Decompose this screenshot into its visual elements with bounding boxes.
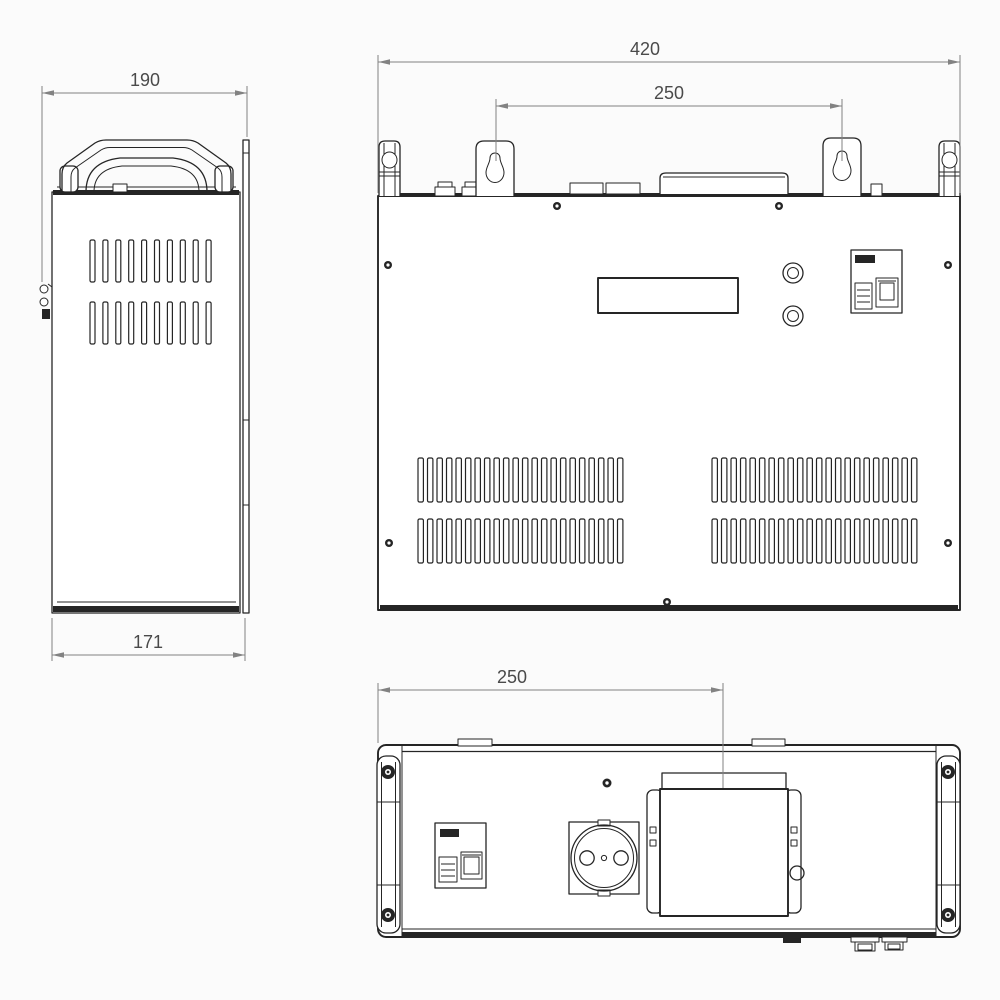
vent-slot <box>494 519 499 563</box>
vent-slot <box>167 302 172 344</box>
vent-slot <box>845 458 850 502</box>
vent-slot <box>561 519 566 563</box>
rail-screw <box>381 908 395 922</box>
vent-slot <box>750 519 755 563</box>
vent-slot <box>485 458 490 502</box>
rail-screw <box>941 765 955 779</box>
screw <box>944 261 952 269</box>
vent-slot <box>836 519 841 563</box>
screw <box>775 202 783 210</box>
vent-slot <box>580 519 585 563</box>
vent-slot <box>798 458 803 502</box>
vent-slot <box>769 519 774 563</box>
vent-slot <box>826 519 831 563</box>
vent-slot <box>731 519 736 563</box>
vent-slot <box>826 458 831 502</box>
vent-slot <box>570 519 575 563</box>
vent-slot <box>912 458 917 502</box>
vent-slot <box>475 458 480 502</box>
vent-slot <box>513 519 518 563</box>
side-handle <box>60 140 233 192</box>
circuit-breaker-front <box>851 250 902 313</box>
vent-slot <box>206 302 211 344</box>
vent-slot <box>779 458 784 502</box>
circuit-breaker-bottom <box>435 823 486 888</box>
vent-slot <box>618 519 623 563</box>
vent-slot <box>103 302 108 344</box>
terminal-cover <box>647 773 801 916</box>
vent-slot <box>769 458 774 502</box>
vent-slot <box>599 458 604 502</box>
screw <box>663 598 671 606</box>
vent-slot <box>494 458 499 502</box>
vent-slot <box>551 519 556 563</box>
vent-slot <box>193 240 198 282</box>
dimension-side-depth: 171 <box>52 618 245 661</box>
front-bottom-band <box>380 605 958 609</box>
vent-slot <box>456 458 461 502</box>
screw <box>553 202 561 210</box>
vent-slot <box>437 458 442 502</box>
vent-slot <box>779 519 784 563</box>
vent-slot <box>90 240 95 282</box>
vent-slot <box>902 519 907 563</box>
vent-slot <box>485 519 490 563</box>
vent-slot <box>893 519 898 563</box>
top-cover <box>660 173 788 194</box>
vent-slot <box>788 458 793 502</box>
dim-label-250-front: 250 <box>654 83 684 103</box>
vent-slot <box>817 458 822 502</box>
vent-slot <box>523 458 528 502</box>
vent-slot <box>180 240 185 282</box>
vent-slot <box>722 458 727 502</box>
vent-slot <box>589 519 594 563</box>
rail-screw <box>941 908 955 922</box>
vent-slot <box>167 240 172 282</box>
vent-slot <box>561 458 566 502</box>
bottom-view: 250 <box>377 667 960 951</box>
vent-slot <box>712 458 717 502</box>
vent-slot <box>864 458 869 502</box>
flange-screw <box>791 827 797 833</box>
vent-slot <box>722 519 727 563</box>
vent-slot <box>551 458 556 502</box>
vent-slot <box>523 519 528 563</box>
vent-slot <box>883 519 888 563</box>
panel-screw <box>603 779 612 788</box>
vent-slot <box>90 302 95 344</box>
vent-slot <box>807 519 812 563</box>
vent-slot <box>428 458 433 502</box>
dim-label-250-bottom: 250 <box>497 667 527 687</box>
vent-slot <box>142 240 147 282</box>
vent-slot <box>504 519 509 563</box>
vent-slot <box>542 519 547 563</box>
vent-slot <box>741 519 746 563</box>
vent-slot <box>418 458 423 502</box>
vent-slot <box>206 240 211 282</box>
vent-slot <box>129 240 134 282</box>
vent-slot <box>116 240 121 282</box>
dim-label-420: 420 <box>630 39 660 59</box>
vent-slot <box>893 458 898 502</box>
vent-slot <box>760 519 765 563</box>
front-handle-right <box>939 141 960 196</box>
vent-slot <box>902 458 907 502</box>
bottom-connectors <box>783 937 907 951</box>
vent-slot <box>874 458 879 502</box>
dim-label-171: 171 <box>133 632 163 652</box>
side-back-panel <box>243 140 249 613</box>
vent-slot <box>599 519 604 563</box>
vent-slot <box>855 458 860 502</box>
vent-slot <box>807 458 812 502</box>
vent-slot <box>845 519 850 563</box>
vent-slot <box>466 458 471 502</box>
top-plates <box>568 183 642 194</box>
screw <box>944 539 952 547</box>
vent-slot <box>475 519 480 563</box>
flange-screw <box>791 840 797 846</box>
vent-slot <box>447 519 452 563</box>
vent-slot <box>437 519 442 563</box>
power-socket <box>569 820 639 896</box>
top-notch <box>871 184 882 196</box>
bottom-rail-left <box>377 756 400 933</box>
screw <box>384 261 392 269</box>
vent-slot <box>589 458 594 502</box>
side-view: 190 171 <box>40 70 249 661</box>
vent-slot <box>447 458 452 502</box>
lcd-display <box>598 278 738 313</box>
vent-slot <box>608 519 613 563</box>
side-clamp <box>40 284 52 319</box>
flange-screw <box>650 840 656 846</box>
vent-slot <box>608 458 613 502</box>
edge-tab-left <box>458 739 492 746</box>
vent-slot <box>142 302 147 344</box>
vent-slot <box>883 458 888 502</box>
vent-slot <box>466 519 471 563</box>
vent-slot <box>580 458 585 502</box>
vent-slot <box>912 519 917 563</box>
vent-slot <box>542 458 547 502</box>
dimension-bracket-spacing: 250 <box>496 83 842 161</box>
vent-slot <box>428 519 433 563</box>
front-handle-left <box>379 141 400 196</box>
rail-screw <box>381 765 395 779</box>
vent-slot <box>155 240 160 282</box>
vent-slot <box>116 302 121 344</box>
vent-slot <box>760 458 765 502</box>
bottom-rail-right <box>937 756 960 933</box>
vent-slot <box>103 240 108 282</box>
vent-slot <box>855 519 860 563</box>
vent-slot <box>741 458 746 502</box>
flange-screw <box>650 827 656 833</box>
vent-slot <box>129 302 134 344</box>
screw <box>385 539 393 547</box>
vent-slot <box>456 519 461 563</box>
vent-slot <box>874 519 879 563</box>
vent-slot <box>155 302 160 344</box>
vent-slot <box>193 302 198 344</box>
side-top-tab <box>113 184 127 192</box>
vent-slot <box>864 519 869 563</box>
side-bottom-band <box>53 606 239 612</box>
vent-slot <box>731 458 736 502</box>
vent-slot <box>817 519 822 563</box>
vent-slot <box>532 458 537 502</box>
vent-slot <box>712 519 717 563</box>
vent-slot <box>418 519 423 563</box>
edge-tab-right <box>752 739 785 746</box>
vent-slot <box>504 458 509 502</box>
front-view: 420 250 <box>378 39 960 610</box>
vent-slot <box>513 458 518 502</box>
bottom-edge-band <box>402 932 936 937</box>
technical-drawing: 190 171 <box>0 0 1000 1000</box>
side-top-band <box>53 190 239 195</box>
vent-slot <box>836 458 841 502</box>
vent-slot <box>570 458 575 502</box>
vent-slot <box>750 458 755 502</box>
vent-slot <box>618 458 623 502</box>
vent-slot <box>532 519 537 563</box>
mounting-bracket-left <box>476 141 514 196</box>
dim-label-190: 190 <box>130 70 160 90</box>
dimension-front-width: 420 <box>378 39 960 193</box>
vent-slot <box>798 519 803 563</box>
vent-slot <box>788 519 793 563</box>
vent-slot <box>180 302 185 344</box>
